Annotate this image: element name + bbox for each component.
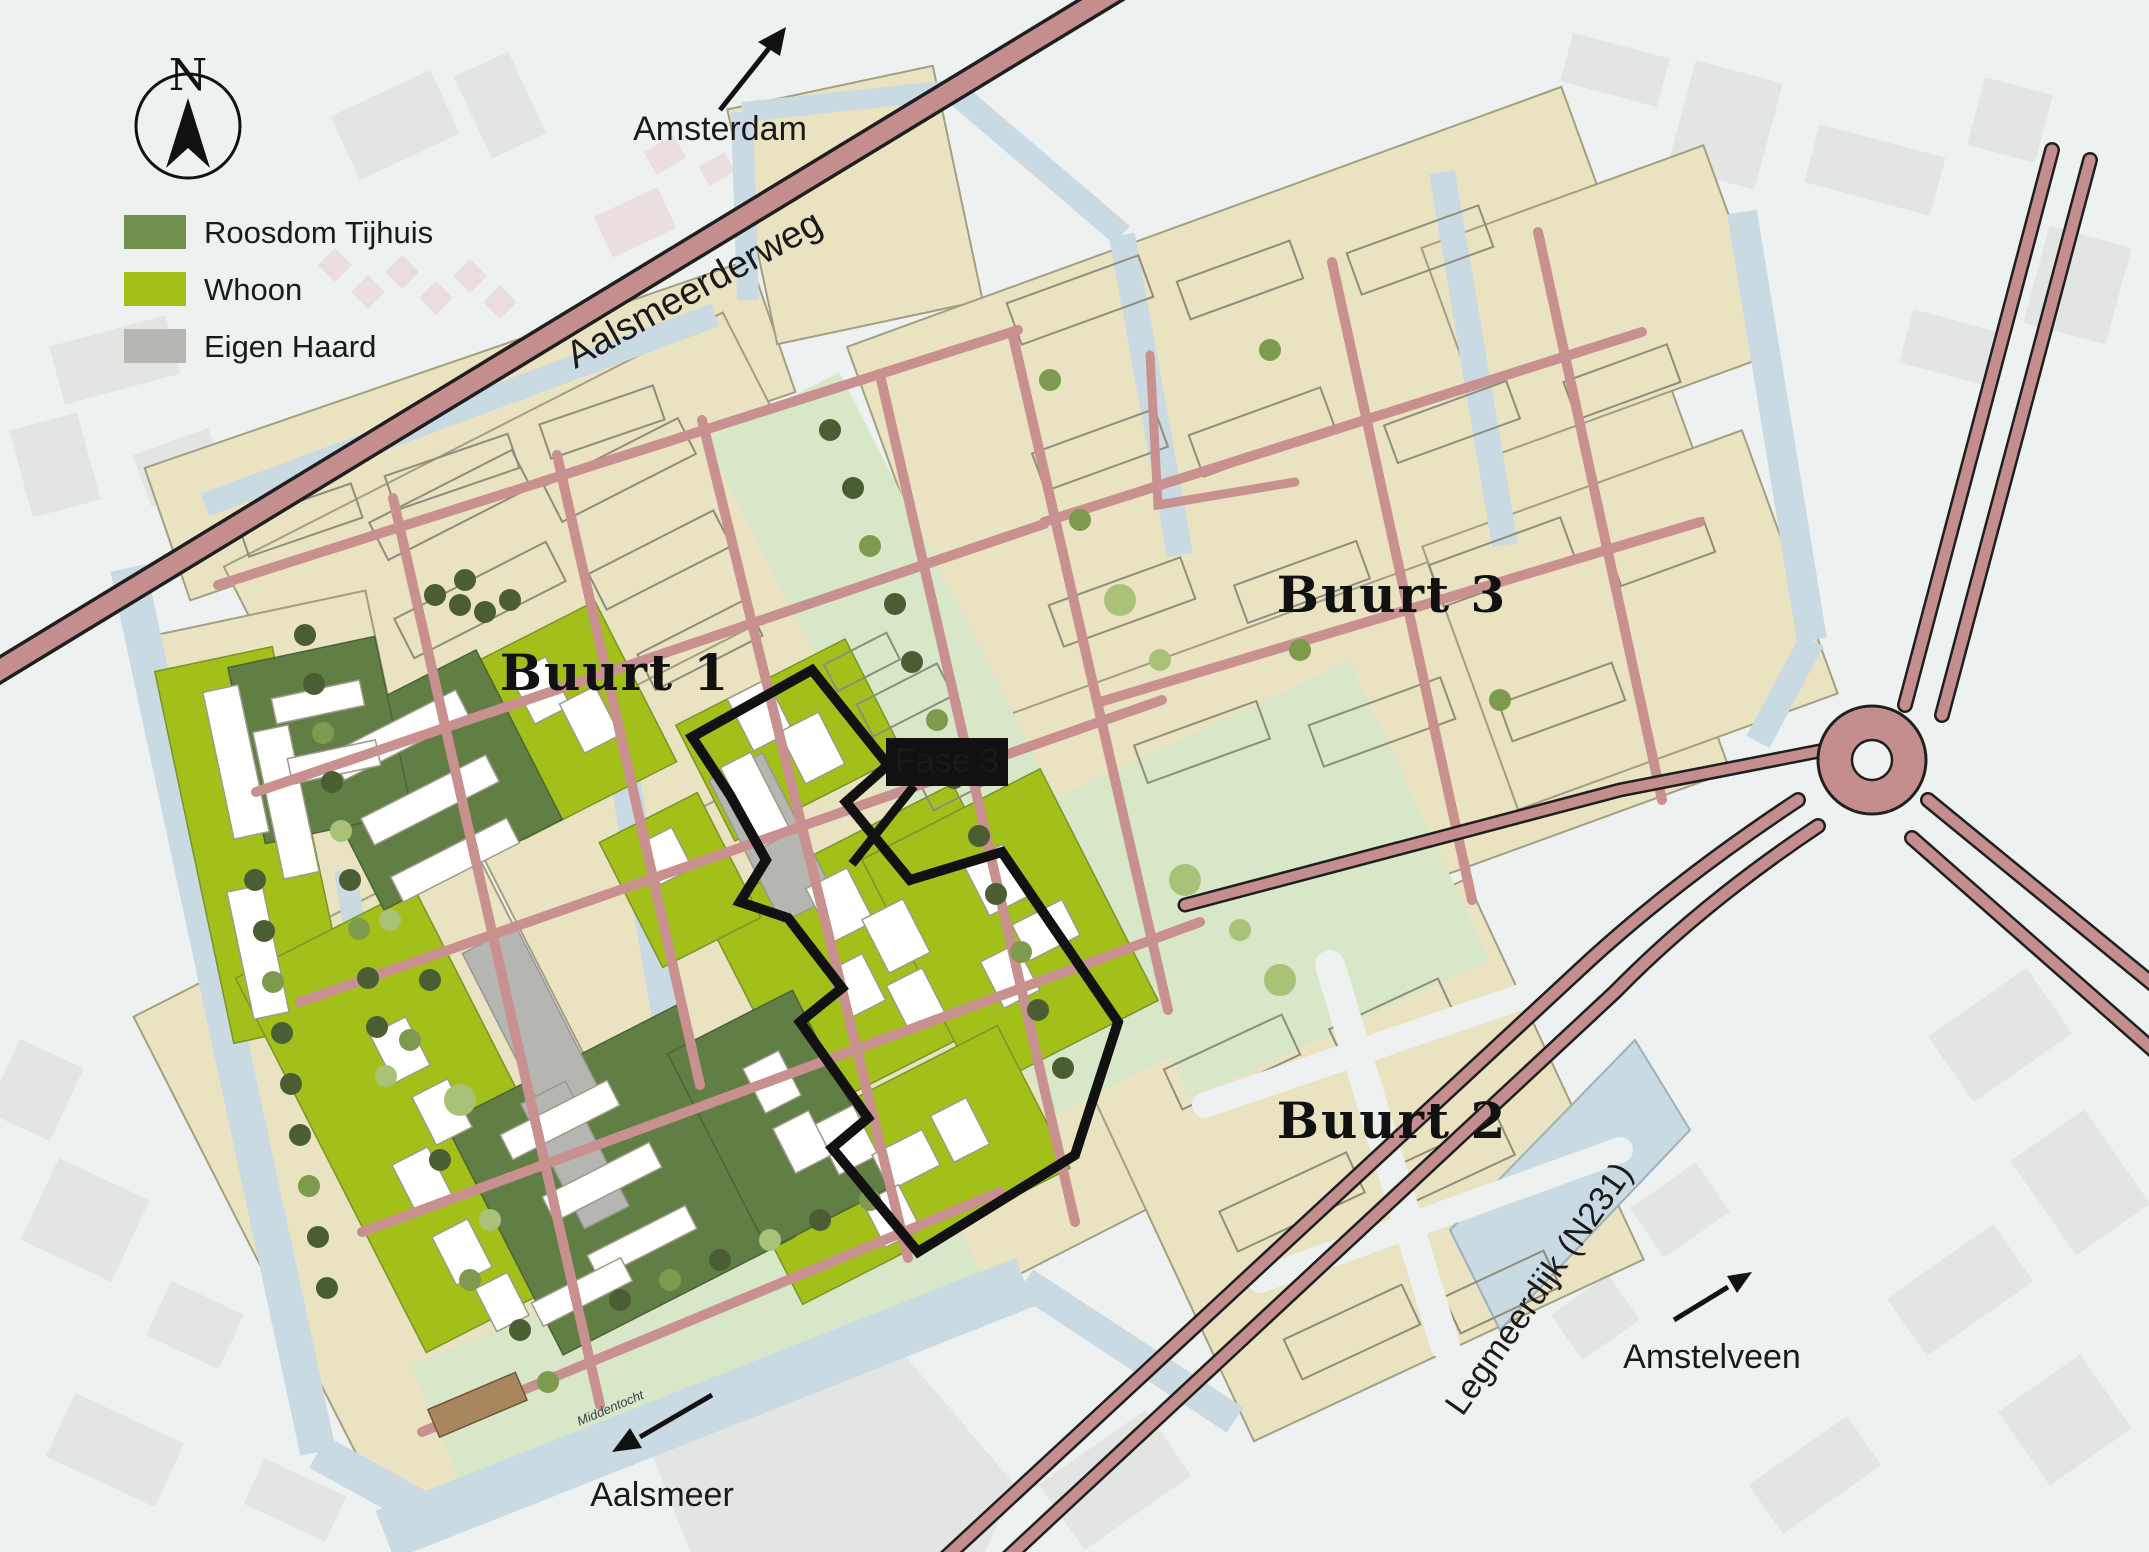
legend-label-eigen-haard: Eigen Haard <box>204 329 376 364</box>
aalsmeer-label: Aalsmeer <box>590 1476 734 1514</box>
legend-swatch-eigen-haard <box>124 329 186 363</box>
amsterdam-label: Amsterdam <box>633 110 807 148</box>
compass-north-letter: N <box>169 50 208 101</box>
legend-label-roosdom: Roosdom Tijhuis <box>204 215 433 250</box>
buurt2-label: Buurt 2 <box>1277 1091 1508 1150</box>
legend-swatch-whoon <box>124 272 186 306</box>
fase3-label: Fase 3 <box>895 742 999 780</box>
legend-item-whoon: Whoon <box>124 272 302 307</box>
site-plan-map: Fase 3 Buurt 1 Buurt 3 Buurt 2 Aalsmeerd… <box>0 0 2149 1552</box>
buurt3-label: Buurt 3 <box>1277 565 1508 624</box>
legend-swatch-roosdom <box>124 215 186 249</box>
legend-item-roosdom: Roosdom Tijhuis <box>124 215 433 250</box>
buurt1-label: Buurt 1 <box>500 643 731 702</box>
map-canvas: Fase 3 Buurt 1 Buurt 3 Buurt 2 Aalsmeerd… <box>0 0 2149 1552</box>
legend-label-whoon: Whoon <box>204 272 302 307</box>
legend-item-eigen-haard: Eigen Haard <box>124 329 376 364</box>
amstelveen-label: Amstelveen <box>1623 1338 1801 1376</box>
